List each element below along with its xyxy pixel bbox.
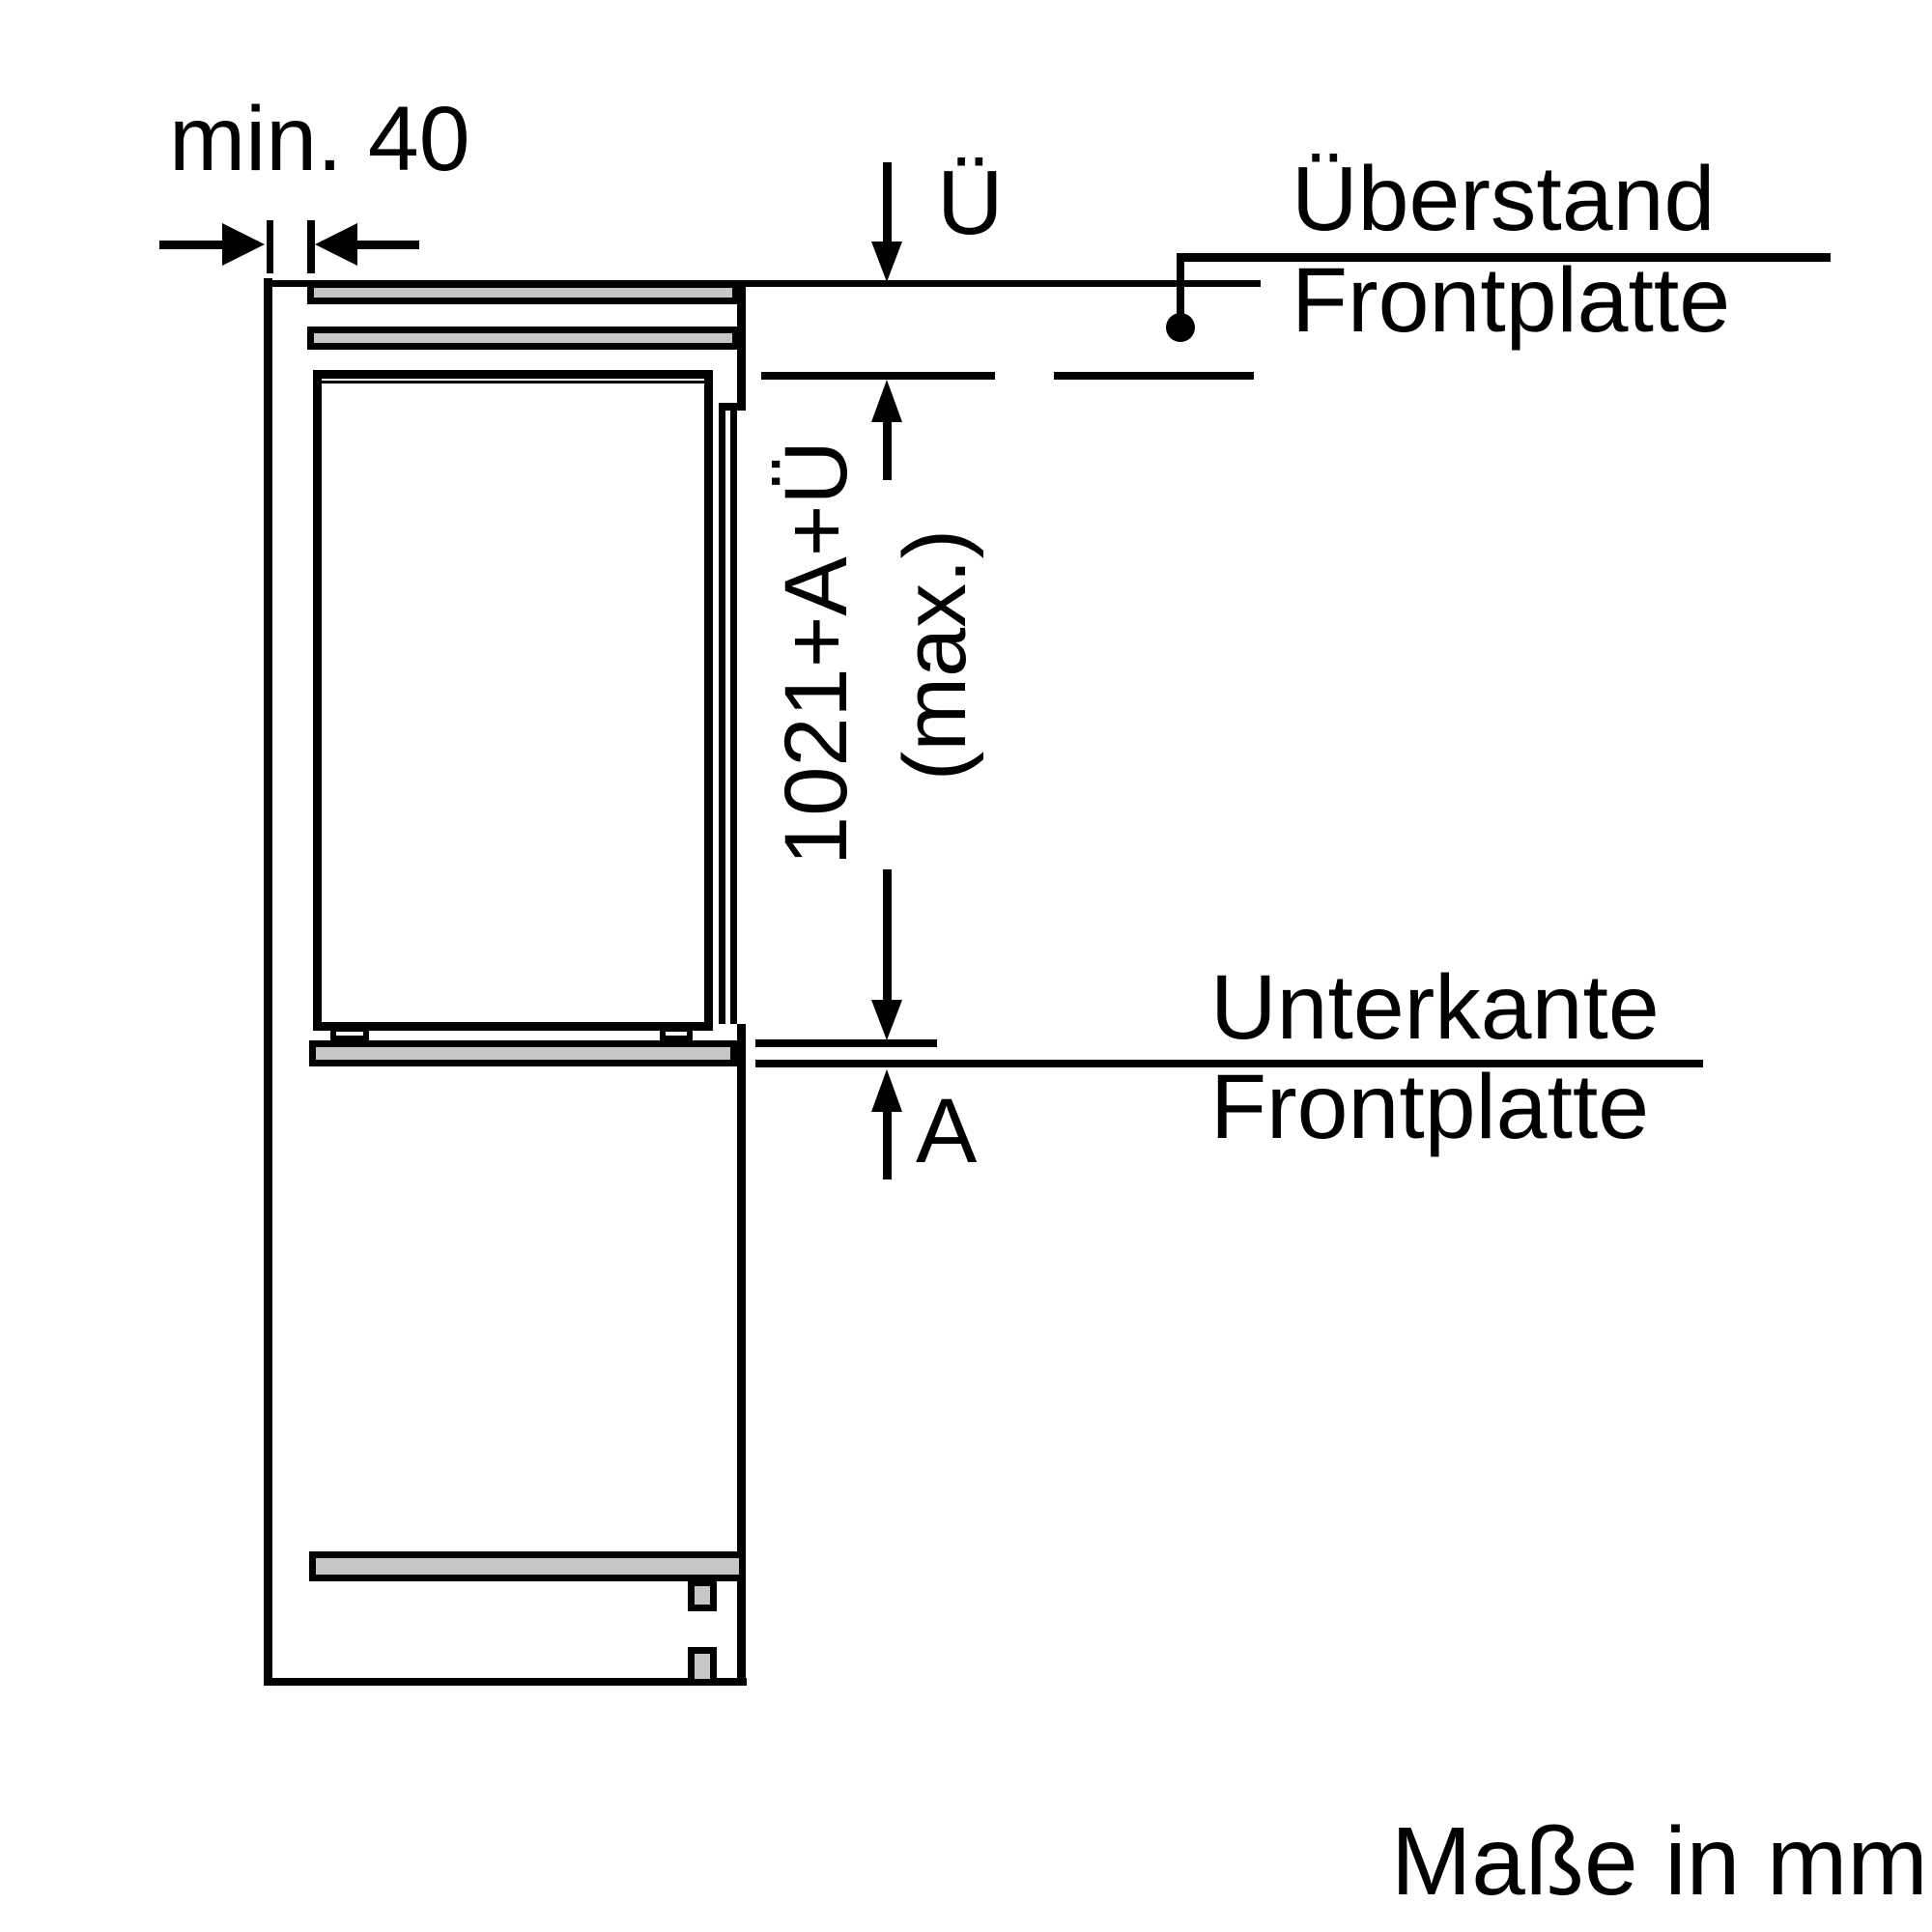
niche-second-panel xyxy=(307,327,739,350)
overhang-name-line2: Frontplatte xyxy=(1292,255,1730,347)
bottom-edge-name-line1: Unterkante xyxy=(1210,962,1660,1054)
overhang-leader-line xyxy=(1177,253,1184,319)
dimension-tick-left xyxy=(267,220,273,273)
plinth-panel xyxy=(309,1040,737,1066)
dimension-tick-right xyxy=(307,220,315,273)
arrowhead-right-icon xyxy=(222,223,265,266)
arrow-shaft-right xyxy=(357,241,419,249)
appliance-body xyxy=(313,370,713,1031)
appliance-foot-right xyxy=(660,1026,693,1041)
panel-length-qualifier-label: (max.) xyxy=(891,529,980,781)
arrowhead-up-icon xyxy=(871,1069,902,1112)
shelf-panel xyxy=(309,1551,746,1581)
arrowhead-down-icon xyxy=(871,1000,902,1040)
min-gap-label: min. 40 xyxy=(169,94,470,185)
cabinet-left-wall xyxy=(264,278,272,1686)
bottom-edge-name-line2: Frontplatte xyxy=(1210,1062,1649,1153)
door-top-reference-line-left xyxy=(761,372,995,380)
arrow-shaft-left xyxy=(159,241,223,249)
niche-top-panel xyxy=(307,281,739,304)
units-note: Maße in mm xyxy=(1391,1813,1928,1910)
arrowhead-left-icon xyxy=(315,223,357,266)
door-line-inner xyxy=(719,403,725,1024)
bottom-gap-arrow-shaft xyxy=(883,1110,892,1179)
arrowhead-up-icon xyxy=(871,380,902,422)
mounting-block-upper xyxy=(688,1579,717,1611)
overhang-name-line1: Überstand xyxy=(1292,154,1715,245)
mounting-block-lower xyxy=(688,1647,717,1686)
overhang-symbol-label: Ü xyxy=(937,157,1004,249)
appliance-bottom-reference-line xyxy=(755,1039,937,1047)
cabinet-right-wall-lower xyxy=(737,1024,746,1686)
leader-dot-icon xyxy=(1166,313,1195,342)
installation-diagram: min. 40 Ü Überstand Frontplatte 1021+A+Ü… xyxy=(0,0,1932,1932)
appliance-foot-left xyxy=(330,1026,369,1041)
cabinet-bottom-line xyxy=(264,1678,747,1686)
door-line-outer xyxy=(730,411,737,1024)
door-top-reference-line-right xyxy=(1054,372,1254,380)
panel-length-formula-label: 1021+A+Ü xyxy=(772,440,861,866)
arrowhead-down-icon xyxy=(871,241,902,282)
bottom-gap-symbol-label: A xyxy=(916,1086,977,1178)
panel-length-arrow-shaft-top xyxy=(883,420,892,480)
appliance-inner-top-line xyxy=(322,381,704,384)
panel-length-arrow-shaft-bottom xyxy=(883,869,892,1000)
overhang-arrow-shaft xyxy=(883,162,892,244)
